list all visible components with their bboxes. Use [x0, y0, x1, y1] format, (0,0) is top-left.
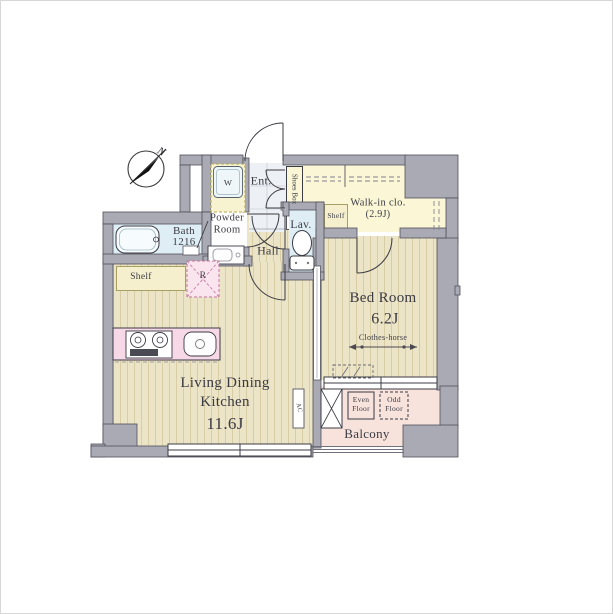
ldk-ac-label: AC	[294, 403, 303, 414]
floor-plan: N Living Dining Kitchen 11.6J Bed Room 6…	[0, 0, 613, 614]
hall-label: Hall	[257, 245, 279, 258]
bath-size-label: 1216	[172, 237, 195, 249]
wic-label: Walk-in clo.	[350, 197, 405, 208]
wic-size-label: (2.9J)	[366, 210, 391, 221]
bedroom-floor	[321, 236, 437, 380]
odd-floor-label-line1: Odd	[387, 396, 401, 404]
even-floor-label-line2: Floor	[352, 405, 370, 413]
compass-north-label: N	[154, 144, 168, 159]
walk-in-closet-floor-ext	[405, 196, 446, 232]
bedroom-size-label: 6.2J	[371, 312, 398, 329]
ldk-label-line2: Kitchen	[200, 395, 250, 411]
kitchen-shelf-label: Shelf	[130, 273, 152, 283]
refrigerator-label: R	[200, 272, 207, 282]
powder-room-label-line1: Powder	[210, 212, 244, 223]
ldk-size-label: 11.6J	[206, 415, 243, 433]
closet-shelf-label: Shelf	[327, 212, 344, 220]
shoes-box-label: Shoes Box	[290, 174, 297, 204]
lavatory-label: Lav.	[290, 219, 311, 231]
entrance-label: Ent.	[251, 175, 272, 188]
even-floor-label-line1: Even	[353, 396, 370, 404]
balcony-railing	[313, 447, 404, 453]
powder-room-label-line2: Room	[214, 224, 241, 235]
odd-floor-label-line2: Floor	[385, 405, 403, 413]
compass: N	[128, 144, 168, 187]
washing-machine-label: W	[224, 179, 232, 188]
bedroom-label: Bed Room	[350, 291, 417, 307]
sliding-door	[314, 266, 321, 380]
balcony-label: Balcony	[344, 427, 389, 441]
ldk-label-line1: Living Dining	[180, 376, 269, 392]
clothes-horse-label: Clothes-horse	[359, 334, 407, 342]
